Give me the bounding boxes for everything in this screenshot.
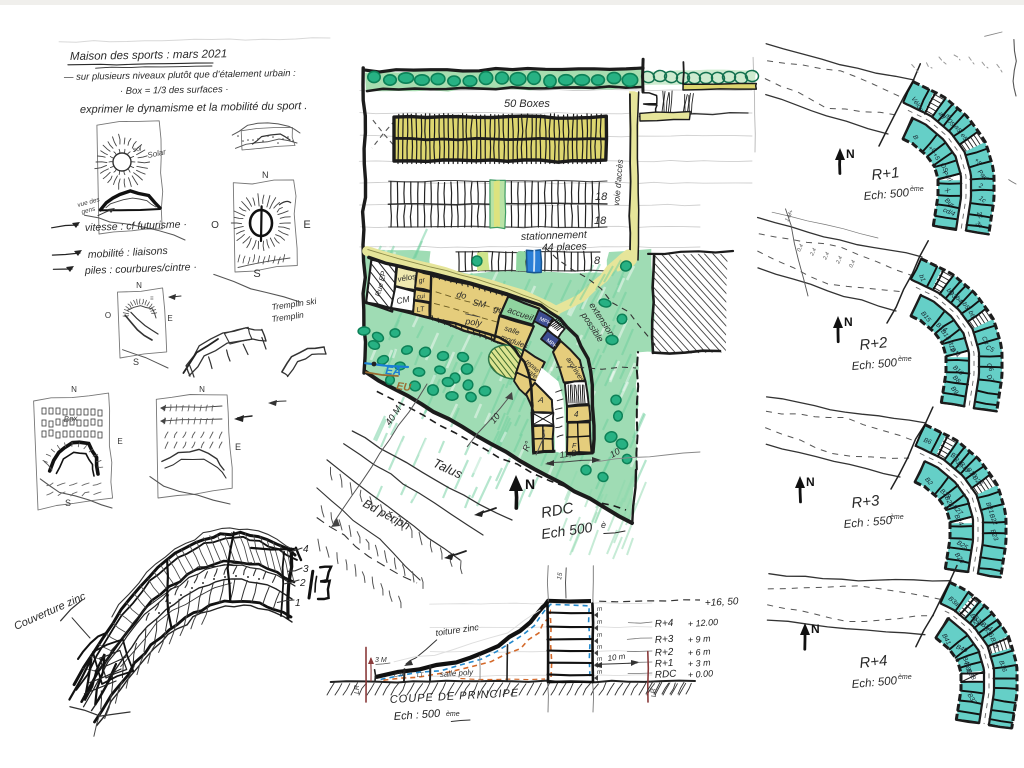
svg-text:3 M: 3 M bbox=[375, 657, 387, 664]
svg-text:ème: ème bbox=[910, 186, 924, 193]
svg-text:RDC: RDC bbox=[654, 668, 677, 681]
svg-text:ème: ème bbox=[890, 514, 904, 521]
svg-text:R+3: R+3 bbox=[654, 634, 674, 646]
svg-text:è: è bbox=[601, 520, 606, 530]
svg-text:· Box = 1/3 des surfaces ·: · Box = 1/3 des surfaces · bbox=[120, 84, 229, 97]
svg-text:+ 3 m: + 3 m bbox=[687, 657, 711, 669]
svg-text:+ 9 m: + 9 m bbox=[687, 633, 711, 645]
svg-text:3: 3 bbox=[303, 564, 309, 575]
svg-text:ème: ème bbox=[446, 711, 460, 718]
svg-text:4: 4 bbox=[574, 410, 579, 419]
svg-text:cui: cui bbox=[416, 293, 426, 301]
svg-text:+16, 50: +16, 50 bbox=[705, 596, 740, 609]
svg-text:E: E bbox=[235, 442, 241, 452]
svg-text:N: N bbox=[806, 475, 815, 489]
svg-text:E: E bbox=[117, 437, 122, 446]
svg-text:+ 0.00: + 0.00 bbox=[687, 668, 713, 680]
svg-text:N: N bbox=[71, 385, 77, 394]
svg-text:S: S bbox=[253, 268, 260, 280]
svg-text:E: E bbox=[303, 219, 310, 231]
svg-text:S: S bbox=[65, 498, 71, 508]
svg-text:do: do bbox=[456, 289, 468, 301]
svg-text:N: N bbox=[846, 147, 855, 161]
svg-text:N: N bbox=[811, 622, 820, 636]
svg-text:O: O bbox=[211, 220, 219, 231]
svg-text:Box: Box bbox=[63, 414, 79, 424]
svg-text:EU: EU bbox=[396, 380, 413, 394]
svg-text:ème: ème bbox=[898, 356, 912, 363]
svg-text:N: N bbox=[136, 281, 142, 290]
svg-text:N: N bbox=[525, 476, 535, 492]
svg-text:R+4: R+4 bbox=[654, 618, 674, 630]
svg-text:50 Boxes: 50 Boxes bbox=[504, 98, 550, 110]
svg-text:2: 2 bbox=[299, 578, 306, 589]
svg-text:S: S bbox=[133, 357, 139, 367]
svg-text:O: O bbox=[105, 311, 111, 320]
svg-text:LR: LR bbox=[354, 685, 361, 694]
svg-text:E: E bbox=[167, 314, 172, 323]
svg-text:N: N bbox=[844, 315, 853, 329]
svg-text:ème: ème bbox=[898, 674, 912, 681]
svg-text:R+3: R+3 bbox=[851, 492, 881, 512]
svg-text:N: N bbox=[262, 170, 269, 180]
svg-text:4: 4 bbox=[303, 544, 309, 555]
svg-text:R+4: R+4 bbox=[859, 652, 889, 672]
svg-text:8: 8 bbox=[594, 255, 601, 267]
svg-text:R+1: R+1 bbox=[871, 164, 901, 184]
svg-text:≡: ≡ bbox=[150, 296, 154, 302]
svg-text:+ 6 m: + 6 m bbox=[687, 646, 711, 658]
svg-text:CTA: CTA bbox=[394, 672, 406, 679]
svg-text:18: 18 bbox=[595, 191, 608, 203]
svg-text:N: N bbox=[199, 385, 205, 394]
svg-text:R+2: R+2 bbox=[859, 334, 889, 354]
svg-text:18: 18 bbox=[594, 215, 607, 227]
svg-text:+ 12.00: + 12.00 bbox=[687, 617, 718, 629]
svg-text:1: 1 bbox=[295, 598, 301, 609]
